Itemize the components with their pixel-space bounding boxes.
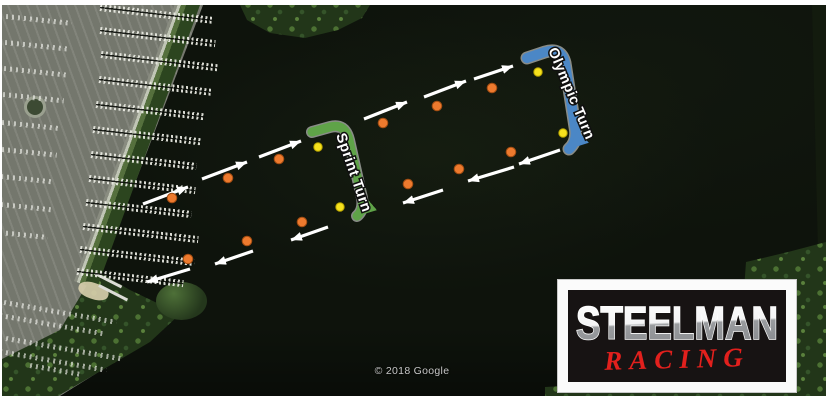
logo-black-box: STEELMAN RACING	[568, 290, 786, 382]
logo-line2: RACING	[568, 341, 786, 378]
yellow-buoy	[336, 203, 344, 211]
course-arrow	[215, 251, 253, 264]
orange-buoy	[506, 147, 516, 157]
orange-buoy	[378, 118, 388, 128]
course-arrow	[291, 227, 328, 240]
orange-buoy	[223, 173, 233, 183]
orange-buoy	[297, 217, 307, 227]
course-arrow	[403, 190, 443, 203]
orange-buoy	[403, 179, 413, 189]
map-attribution: © 2018 Google	[352, 365, 472, 377]
orange-buoy	[274, 154, 284, 164]
yellow-buoy	[559, 129, 567, 137]
orange-buoy	[454, 164, 464, 174]
yellow-buoy	[314, 143, 322, 151]
course-arrow	[147, 269, 190, 282]
orange-buoy	[487, 83, 497, 93]
yellow-buoy	[534, 68, 542, 76]
course-arrow	[424, 81, 466, 97]
map-screenshot: Sprint TurnOlympic Turn © 2018 Google ST…	[0, 0, 826, 407]
orange-buoy	[432, 101, 442, 111]
course-arrow	[519, 150, 560, 164]
orange-buoy	[183, 254, 193, 264]
course-arrow	[468, 167, 514, 181]
orange-buoy	[167, 193, 177, 203]
course-arrow	[474, 66, 513, 79]
course-arrow	[364, 102, 407, 119]
steelman-racing-logo: STEELMAN RACING	[557, 279, 797, 393]
course-arrow	[143, 187, 188, 204]
orange-buoy	[242, 236, 252, 246]
